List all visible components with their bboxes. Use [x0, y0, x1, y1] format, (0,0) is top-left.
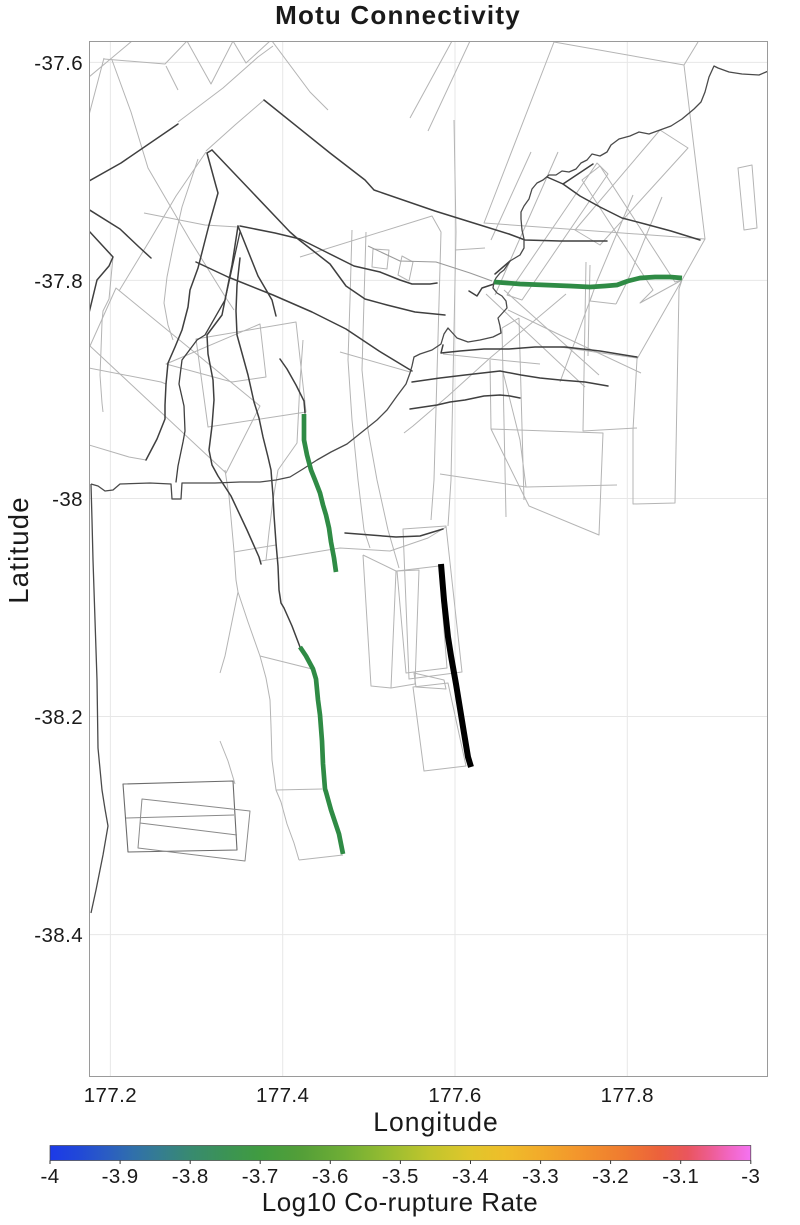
svg-text:-3.3: -3.3 — [522, 1165, 559, 1188]
svg-text:-3.7: -3.7 — [242, 1165, 279, 1188]
svg-text:-3.1: -3.1 — [662, 1165, 699, 1188]
svg-text:Latitude: Latitude — [3, 496, 34, 603]
svg-text:-3.5: -3.5 — [382, 1165, 419, 1188]
svg-text:-3: -3 — [741, 1165, 760, 1188]
svg-text:-37.8: -37.8 — [34, 270, 83, 293]
svg-text:-3.2: -3.2 — [592, 1165, 629, 1188]
svg-text:-37.6: -37.6 — [34, 52, 83, 75]
svg-text:-3.4: -3.4 — [452, 1165, 489, 1188]
svg-text:177.4: 177.4 — [256, 1084, 309, 1107]
svg-text:177.6: 177.6 — [428, 1084, 481, 1107]
svg-text:177.2: 177.2 — [84, 1084, 137, 1107]
svg-text:-3.8: -3.8 — [172, 1165, 209, 1188]
svg-text:Log10 Co-rupture Rate: Log10 Co-rupture Rate — [262, 1187, 538, 1217]
svg-text:177.8: 177.8 — [601, 1084, 654, 1107]
svg-text:-38.4: -38.4 — [34, 924, 83, 947]
svg-text:-3.9: -3.9 — [102, 1165, 139, 1188]
svg-text:Longitude: Longitude — [373, 1107, 498, 1137]
svg-text:-4: -4 — [40, 1165, 59, 1188]
svg-text:Motu Connectivity: Motu Connectivity — [275, 0, 521, 30]
svg-text:-38: -38 — [52, 488, 83, 511]
svg-text:-3.6: -3.6 — [312, 1165, 349, 1188]
svg-text:-38.2: -38.2 — [34, 706, 83, 729]
